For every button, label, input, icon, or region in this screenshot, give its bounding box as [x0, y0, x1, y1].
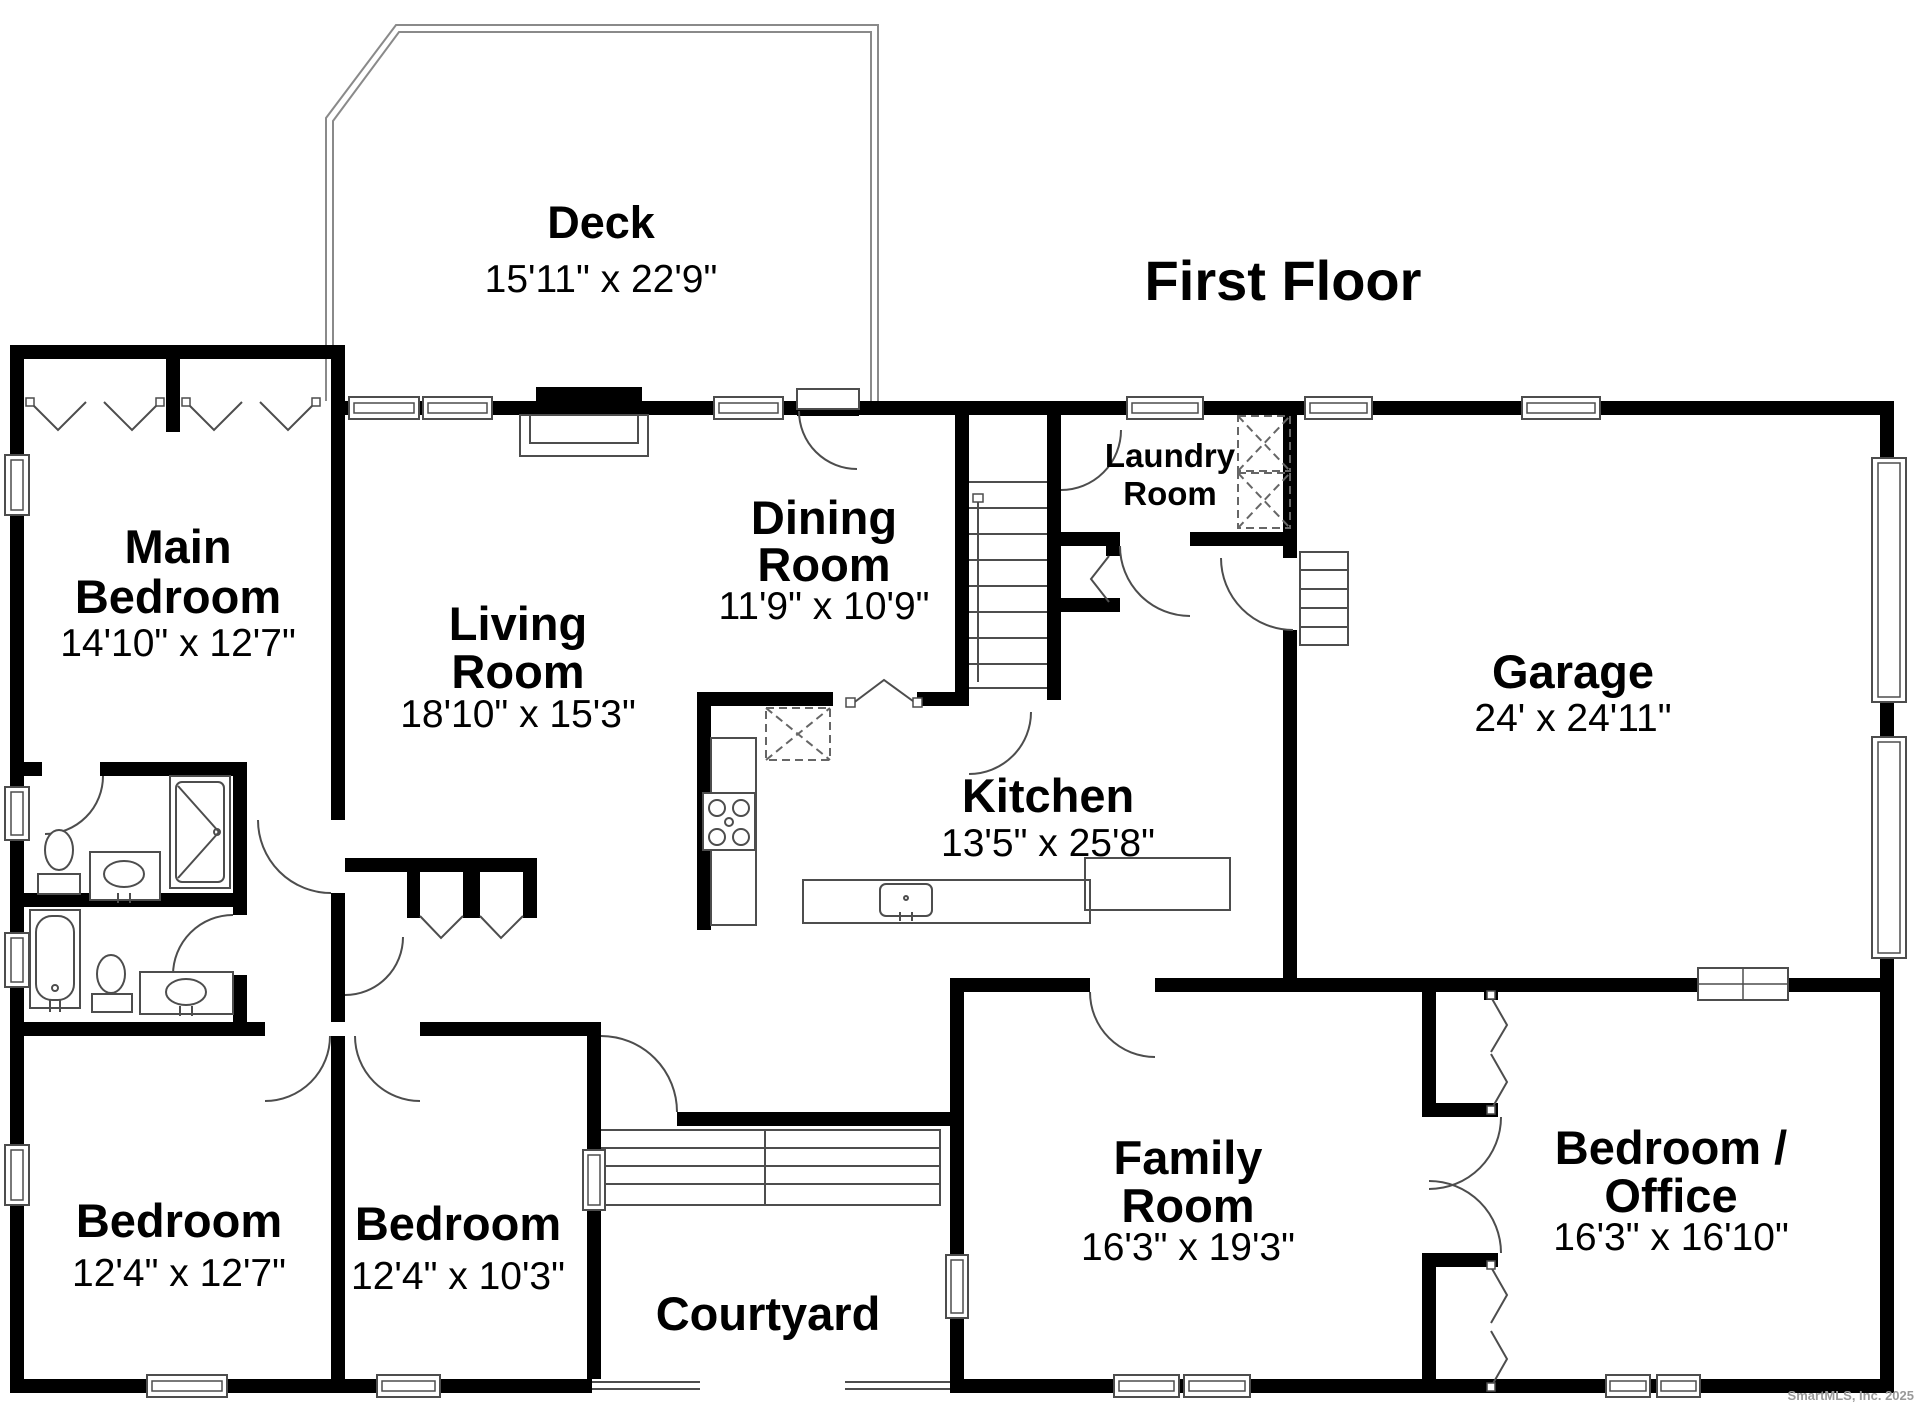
bedroom-left-dims: 12'4" x 12'7": [72, 1252, 286, 1295]
door-arc-courtyard: [601, 1036, 677, 1112]
window: [5, 1145, 29, 1205]
living-room-dims: 18'10" x 15'3": [400, 693, 636, 736]
window: [1114, 1375, 1179, 1397]
window: [147, 1375, 227, 1397]
kitchen-doorway-chevron: [846, 680, 922, 707]
washer-dryer-icons: [1238, 416, 1290, 528]
dining-room-label: Dining: [751, 491, 897, 544]
bathtub-icon: [30, 910, 80, 1012]
window: [377, 1375, 440, 1397]
page-title: First Floor: [1145, 249, 1422, 312]
laundry-label: Laundry: [1105, 437, 1236, 474]
bifold-closet-doors-office: [1487, 991, 1507, 1391]
stove-icon: [703, 793, 755, 850]
courtyard-structures: [592, 1130, 950, 1389]
window: [1606, 1375, 1650, 1397]
window: [349, 397, 419, 419]
sink-icon: [166, 979, 206, 1005]
garage-door: [1872, 737, 1906, 958]
nook-table: [1085, 858, 1230, 910]
door-arc-bedroom-middle: [355, 1036, 420, 1101]
garage-dims: 24' x 24'11": [1474, 697, 1671, 740]
bath2-fixtures: [30, 910, 233, 1016]
toilet-tank: [92, 994, 132, 1012]
sliding-door: [1698, 968, 1788, 1000]
door-arc-hall: [345, 937, 403, 995]
kitchen-label: Kitchen: [962, 769, 1134, 822]
deck-dims: 15'11" x 22'9": [485, 258, 718, 301]
courtyard-pergola: [595, 1130, 940, 1205]
window: [423, 397, 492, 419]
window: [583, 1150, 605, 1210]
window: [714, 397, 783, 419]
deck-label: Deck: [547, 197, 656, 248]
courtyard-label: Courtyard: [656, 1287, 881, 1340]
bedroom-middle-dims: 12'4" x 10'3": [351, 1255, 565, 1298]
bedroom-office-dims: 16'3" x 16'10": [1553, 1216, 1789, 1259]
exterior-door: [797, 389, 859, 469]
window: [5, 933, 29, 987]
fixtures: [30, 416, 1290, 1016]
living-room-label2: Room: [451, 645, 584, 698]
toilet-icon: [45, 830, 73, 870]
window: [1522, 397, 1600, 419]
living-room-label: Living: [449, 597, 587, 650]
garage-doors: [1698, 458, 1906, 1000]
floor-plan-page: First Floor Deck 15'11" x 22'9" Main Bed…: [0, 0, 1920, 1403]
window: [1657, 1375, 1700, 1397]
main-bedroom-dims: 14'10" x 12'7": [60, 622, 296, 665]
family-room-label: Family: [1114, 1131, 1263, 1184]
window: [1305, 397, 1372, 419]
window: [5, 455, 29, 515]
fireplace: [520, 387, 648, 456]
door-arc-main-bedroom: [258, 820, 331, 893]
toilet-tank: [38, 874, 80, 894]
dining-room-dims: 11'9" x 10'9": [719, 585, 930, 628]
kitchen-island: [803, 880, 1090, 923]
main-bedroom-label2: Bedroom: [75, 570, 281, 623]
dining-room-label2: Room: [757, 538, 890, 591]
laundry-label2: Room: [1123, 475, 1217, 512]
double-door-office: [1429, 1117, 1501, 1253]
window: [946, 1255, 968, 1318]
family-room-dims: 16'3" x 19'3": [1081, 1226, 1295, 1269]
bedroom-office-label2: Office: [1604, 1169, 1737, 1222]
window: [5, 787, 29, 840]
bath1-fixtures: [38, 776, 230, 903]
garage-door: [1872, 458, 1906, 702]
window: [1184, 1375, 1250, 1397]
window: [1127, 397, 1203, 419]
door-arc-family-room: [1090, 992, 1155, 1057]
main-bedroom-label: Main: [124, 520, 231, 573]
door-arc-bath1: [45, 776, 103, 834]
kitchen-dims: 13'5" x 25'8": [941, 822, 1155, 865]
shower-icon: [170, 776, 230, 888]
door-arc-garage-entry: [1221, 558, 1293, 630]
garage-label: Garage: [1492, 645, 1654, 698]
bedroom-middle-label: Bedroom: [355, 1197, 561, 1250]
floor-plan-drawing: First Floor Deck 15'11" x 22'9" Main Bed…: [0, 0, 1920, 1403]
watermark: SmartMLS, Inc. 2025: [1788, 1388, 1914, 1403]
garage-steps: [1300, 552, 1348, 645]
bifold-closet-doors-hall: [420, 916, 523, 938]
toilet-icon: [97, 955, 125, 993]
bedroom-office-label: Bedroom /: [1555, 1121, 1787, 1174]
door-arc-bedroom-left: [265, 1036, 330, 1101]
sink-icon: [104, 861, 144, 887]
bedroom-left-label: Bedroom: [76, 1194, 282, 1247]
family-room-label2: Room: [1121, 1179, 1254, 1232]
door-arc-laundry: [1120, 546, 1190, 616]
door-arc-bath2: [173, 915, 233, 975]
door-arc-stair-hall: [969, 712, 1031, 774]
bifold-coat-closet: [1091, 556, 1109, 602]
